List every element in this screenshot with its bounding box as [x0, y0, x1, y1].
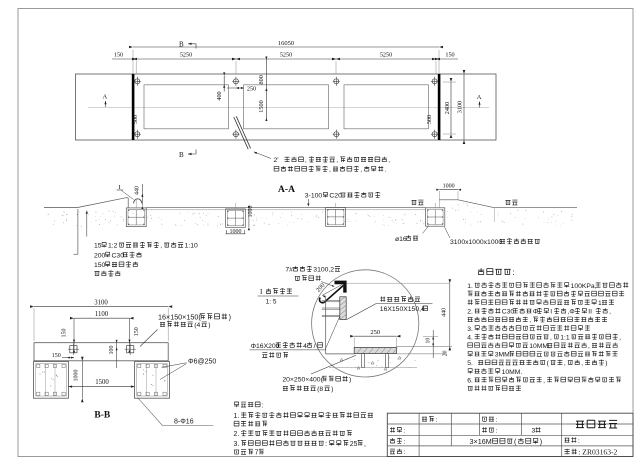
svg-text:3100: 3100 — [94, 299, 108, 306]
svg-text:16×150×150(: 16×150×150( — [158, 312, 201, 321]
svg-text:2.: 2. — [234, 431, 240, 438]
svg-text:): ) — [229, 312, 231, 321]
svg-text:1100: 1100 — [95, 311, 109, 318]
svg-text:250: 250 — [247, 86, 256, 93]
svg-text::: : — [403, 449, 405, 456]
svg-text:100KPa,: 100KPa, — [571, 283, 597, 290]
svg-text:B: B — [179, 151, 184, 159]
svg-text:,: , — [305, 157, 307, 164]
svg-text:150: 150 — [134, 327, 140, 336]
svg-text:): ) — [605, 360, 607, 367]
svg-text:,: , — [550, 334, 552, 341]
svg-text:3100,2: 3100,2 — [313, 267, 334, 274]
svg-text:500: 500 — [426, 115, 433, 124]
svg-text:150: 150 — [114, 52, 123, 59]
svg-text:800: 800 — [258, 75, 265, 84]
svg-text:3MM.: 3MM. — [495, 352, 512, 359]
svg-text:A-A: A-A — [278, 185, 295, 195]
svg-text:ø16: ø16 — [395, 236, 407, 243]
svg-text:2.: 2. — [467, 309, 473, 316]
svg-text:7#: 7# — [285, 267, 293, 274]
svg-text:1.: 1. — [234, 413, 240, 420]
svg-text:4.: 4. — [467, 334, 473, 341]
svg-text::: : — [495, 428, 497, 435]
svg-text::: : — [325, 441, 327, 448]
svg-text:10MM,: 10MM, — [529, 343, 550, 350]
svg-text:2': 2' — [274, 157, 279, 164]
svg-text:150: 150 — [52, 353, 61, 359]
svg-text:1000: 1000 — [74, 370, 80, 382]
svg-text:400: 400 — [216, 91, 223, 100]
svg-text:2400: 2400 — [444, 102, 451, 114]
svg-text:,: , — [581, 360, 583, 367]
svg-text:,: , — [543, 377, 545, 384]
svg-text:8-Φ16: 8-Φ16 — [174, 418, 194, 425]
svg-text:C30: C30 — [502, 309, 515, 316]
svg-text:1500: 1500 — [95, 379, 109, 386]
svg-text:15: 15 — [94, 243, 102, 250]
svg-text:,: , — [388, 157, 390, 164]
svg-text:I: I — [550, 309, 552, 316]
svg-text:5250: 5250 — [180, 52, 192, 59]
svg-text:150: 150 — [94, 262, 106, 269]
svg-text:,: , — [329, 167, 331, 174]
svg-text:25: 25 — [350, 441, 358, 448]
svg-text:3: 3 — [532, 428, 536, 435]
svg-text:A: A — [477, 94, 482, 101]
svg-text:,: , — [588, 343, 590, 350]
svg-text::: : — [403, 439, 405, 446]
svg-text::: : — [403, 428, 405, 435]
svg-text:): ) — [540, 437, 542, 446]
svg-text:16X150X150,4: 16X150X150,4 — [380, 306, 425, 313]
svg-text:10: 10 — [425, 338, 431, 344]
svg-text:1000: 1000 — [230, 229, 242, 235]
svg-text:6.: 6. — [467, 377, 473, 384]
svg-text:(4: (4 — [194, 322, 200, 329]
svg-text:Φ6@250: Φ6@250 — [188, 359, 216, 366]
svg-text:): ) — [349, 377, 351, 384]
svg-text:,: , — [609, 309, 611, 316]
svg-text:5.: 5. — [467, 360, 473, 367]
svg-text:(8: (8 — [317, 386, 323, 393]
svg-text:150: 150 — [61, 329, 67, 338]
svg-text:440: 440 — [135, 186, 141, 195]
svg-text:: ZR03163-2: : ZR03163-2 — [578, 447, 617, 456]
svg-text:,: , — [336, 157, 338, 164]
svg-text::: : — [578, 438, 580, 445]
svg-text::: : — [262, 402, 264, 409]
svg-text:.: . — [385, 167, 387, 174]
svg-text:): ) — [331, 386, 333, 393]
svg-text:,: , — [564, 360, 566, 367]
svg-text:3×16M: 3×16M — [470, 437, 492, 446]
svg-text:5250: 5250 — [280, 52, 292, 59]
svg-text:,: , — [360, 167, 362, 174]
svg-text:1:2: 1:2 — [108, 243, 118, 250]
svg-text:100: 100 — [109, 346, 115, 355]
svg-text:/: / — [314, 343, 316, 350]
svg-text:): ) — [208, 322, 210, 329]
svg-text:B-B: B-B — [94, 411, 111, 421]
svg-text:20×250×400(: 20×250×400( — [282, 377, 323, 384]
svg-text:5250: 5250 — [380, 52, 392, 59]
svg-text:3.: 3. — [467, 326, 473, 333]
svg-text::: : — [512, 267, 514, 277]
svg-text:20: 20 — [443, 350, 449, 356]
svg-text:3100x1000x1000: 3100x1000x1000 — [450, 239, 502, 246]
svg-text::: : — [435, 417, 437, 424]
svg-text:A: A — [103, 94, 108, 101]
svg-text:4: 4 — [303, 343, 307, 350]
svg-text:II: II — [588, 309, 592, 316]
svg-text:1000: 1000 — [248, 206, 254, 218]
svg-text:1500: 1500 — [258, 100, 265, 112]
svg-text:C20: C20 — [329, 193, 342, 200]
svg-text:,Φ: ,Φ — [568, 309, 575, 316]
svg-text:16050: 16050 — [278, 40, 294, 47]
svg-text:1:1: 1:1 — [560, 334, 570, 341]
svg-text::: : — [495, 417, 497, 424]
svg-text:,: , — [160, 243, 162, 250]
svg-text:250: 250 — [370, 329, 380, 336]
svg-text:1:10: 1:10 — [185, 243, 198, 250]
svg-text:1: 5: 1: 5 — [266, 299, 277, 306]
svg-text:10MM.: 10MM. — [502, 369, 523, 376]
svg-text:,: , — [529, 317, 531, 324]
svg-text:440: 440 — [442, 308, 448, 317]
svg-text:500: 500 — [132, 115, 139, 124]
svg-text:150: 150 — [445, 52, 454, 59]
svg-text:200: 200 — [94, 252, 106, 259]
svg-text:,: , — [619, 334, 621, 341]
svg-text:7: 7 — [255, 450, 259, 457]
svg-text:3-100: 3-100 — [305, 193, 323, 200]
svg-text:1000: 1000 — [443, 184, 455, 190]
svg-text:3.: 3. — [234, 441, 240, 448]
svg-text:Φ16X200: Φ16X200 — [251, 343, 280, 350]
svg-text:1.: 1. — [467, 283, 473, 290]
svg-text:,: , — [364, 441, 366, 448]
svg-text:1: 1 — [598, 300, 602, 307]
svg-text:3100: 3100 — [457, 101, 464, 113]
svg-text:C30: C30 — [112, 252, 125, 259]
svg-text:B: B — [179, 41, 184, 49]
svg-text:Φ: Φ — [533, 309, 538, 316]
